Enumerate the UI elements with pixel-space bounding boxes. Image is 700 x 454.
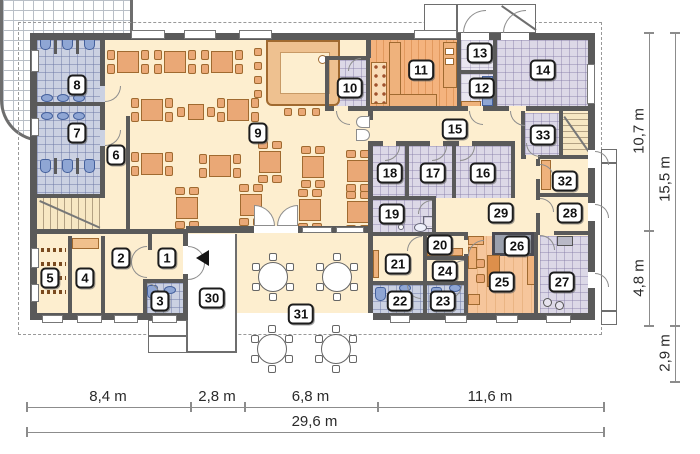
terrace-door-gap — [254, 226, 298, 233]
chair — [201, 64, 209, 74]
room-label-7: 7 — [67, 123, 86, 144]
table-top — [141, 153, 163, 175]
dimension-label: 2,9 m — [657, 334, 674, 372]
wall — [101, 236, 105, 313]
chair — [301, 146, 311, 154]
room-label-29: 29 — [488, 203, 514, 224]
window — [445, 315, 467, 323]
chair — [312, 189, 322, 197]
wall — [511, 146, 515, 198]
chair — [177, 107, 185, 117]
chair — [217, 112, 225, 122]
terrace-chair — [251, 355, 259, 363]
office-cabinet — [468, 294, 480, 305]
room-label-28: 28 — [557, 203, 583, 224]
chair — [251, 112, 259, 122]
chair — [272, 175, 282, 183]
room-label-4: 4 — [75, 268, 94, 289]
wall — [100, 40, 105, 198]
wall — [423, 281, 427, 313]
window — [184, 30, 216, 39]
room-label-2: 2 — [111, 248, 130, 269]
toilet-icon — [375, 287, 386, 301]
chair — [217, 98, 225, 108]
door-gap — [588, 203, 595, 221]
dimension-tick — [603, 427, 605, 437]
bar-stool — [312, 108, 320, 116]
room-label-21: 21 — [385, 254, 411, 275]
dimension-line — [26, 407, 603, 408]
wall — [452, 146, 456, 198]
kitchen-shelf — [371, 62, 387, 104]
table-top — [347, 201, 369, 223]
toilet-icon — [62, 159, 73, 173]
chair — [239, 218, 249, 226]
floor-plan-canvas: 1234567891011121314151617181920212223242… — [0, 0, 700, 454]
boiler-tank — [543, 298, 552, 307]
chair — [154, 64, 162, 74]
chair — [154, 50, 162, 60]
toilet-icon — [84, 159, 95, 173]
terrace-window — [302, 227, 332, 233]
boiler-tank — [555, 301, 564, 310]
table-top — [347, 160, 369, 182]
window — [152, 315, 177, 323]
terrace-chair — [285, 335, 293, 343]
room-label-18: 18 — [377, 163, 403, 184]
terrace-chair — [269, 253, 277, 261]
terrace-table-top — [322, 262, 352, 292]
terrace-chair — [252, 283, 260, 291]
dimension-tick — [26, 402, 28, 412]
dimension-tick — [244, 402, 246, 412]
terrace-chair — [350, 283, 358, 291]
office-chair — [476, 259, 485, 268]
terrace-chair — [286, 263, 294, 271]
chair — [199, 168, 207, 178]
window — [131, 30, 165, 39]
coat-rail — [41, 262, 66, 266]
ramp-divider — [456, 4, 458, 33]
table-top — [211, 51, 233, 73]
room-label-16: 16 — [470, 163, 496, 184]
room-label-33: 33 — [530, 125, 556, 146]
window — [114, 315, 138, 323]
wall — [493, 40, 497, 110]
table-top — [299, 199, 321, 221]
washbasin-room19 — [414, 223, 427, 232]
dimension-label: 8,4 m — [89, 388, 127, 405]
room-label-31: 31 — [288, 304, 314, 325]
dimension-tick — [670, 32, 680, 34]
dimension-label: 29,6 m — [292, 413, 338, 430]
room-label-3: 3 — [150, 291, 169, 312]
table-top — [141, 99, 163, 121]
dimension-label: 2,8 m — [198, 388, 236, 405]
chair — [189, 187, 199, 195]
chair — [239, 184, 249, 192]
room-label-11: 11 — [408, 60, 434, 81]
chair — [315, 180, 325, 188]
sink-icon — [41, 94, 53, 102]
dimension-line — [649, 32, 650, 325]
chair — [131, 112, 139, 122]
chair — [235, 50, 243, 60]
window — [31, 50, 39, 72]
chair — [199, 154, 207, 164]
wall — [148, 234, 152, 250]
wall — [534, 232, 538, 313]
terrace-chair — [349, 335, 357, 343]
bar-stool — [254, 76, 262, 84]
chair — [165, 98, 173, 108]
wall — [325, 56, 329, 110]
door-gap — [461, 33, 489, 40]
room-label-8: 8 — [67, 75, 86, 96]
wall — [457, 40, 461, 110]
window — [31, 284, 39, 302]
table-top — [302, 156, 324, 178]
room-label-25: 25 — [489, 272, 515, 293]
chair — [131, 152, 139, 162]
room-label-12: 12 — [469, 78, 495, 99]
dimension-tick — [603, 402, 605, 412]
room-label-32: 32 — [552, 171, 578, 192]
chair — [188, 50, 196, 60]
dimension-tick — [644, 32, 654, 34]
coat-rail — [41, 248, 66, 252]
terrace-table-top — [258, 262, 288, 292]
chair — [251, 98, 259, 108]
window — [42, 315, 63, 323]
wall — [325, 56, 369, 60]
entrance-arrow-icon — [196, 250, 209, 266]
room-label-20: 20 — [427, 235, 453, 256]
chair — [165, 112, 173, 122]
wall — [68, 236, 72, 313]
chair — [346, 150, 356, 158]
dimension-line — [26, 432, 603, 433]
dimension-tick — [670, 325, 680, 327]
table-top — [209, 155, 231, 177]
terrace-window — [336, 227, 364, 233]
room-label-24: 24 — [432, 261, 458, 282]
door-gap — [588, 150, 595, 168]
table-top — [259, 151, 281, 173]
chair — [272, 141, 282, 149]
terrace-chair — [315, 335, 323, 343]
office-chair — [476, 274, 485, 283]
toilet-icon — [40, 159, 51, 173]
chair — [233, 168, 241, 178]
wall — [536, 193, 588, 197]
dimension-label: 15,5 m — [657, 156, 674, 202]
utility-box — [557, 236, 573, 246]
chair — [165, 166, 173, 176]
bar-stool — [298, 108, 306, 116]
stall-divider — [54, 158, 57, 174]
dimension-tick — [190, 402, 192, 412]
table-top — [188, 104, 204, 120]
dimension-tick — [644, 230, 654, 232]
terrace-chair — [332, 325, 340, 333]
bar-stool — [254, 62, 262, 70]
entry-steps-lower — [148, 336, 188, 353]
wall — [368, 141, 373, 313]
chair — [258, 175, 268, 183]
chair — [346, 191, 356, 199]
wall — [559, 111, 563, 159]
floor-drain-room19 — [398, 224, 404, 230]
room-label-15: 15 — [442, 119, 468, 140]
chair — [131, 98, 139, 108]
chair — [131, 166, 139, 176]
chair — [141, 50, 149, 60]
table-top — [164, 51, 186, 73]
room-label-13: 13 — [467, 43, 493, 64]
chair — [233, 154, 241, 164]
chair — [235, 64, 243, 74]
room-label-27: 27 — [549, 272, 575, 293]
room-label-17: 17 — [420, 163, 446, 184]
terrace-chair — [350, 263, 358, 271]
stall-divider — [54, 40, 57, 54]
window — [239, 30, 272, 39]
wall — [432, 196, 436, 236]
chair — [141, 64, 149, 74]
table-top — [117, 51, 139, 73]
table-top — [227, 99, 249, 121]
dimension-tick — [377, 402, 379, 412]
chair — [175, 221, 185, 229]
chair — [315, 146, 325, 154]
stall-divider — [76, 158, 79, 174]
dimension-tick — [26, 427, 28, 437]
room-label-1: 1 — [157, 248, 176, 269]
sink-icon — [57, 112, 69, 120]
wall — [37, 194, 103, 198]
sink-icon — [57, 94, 69, 102]
chair — [301, 180, 311, 188]
room-label-22: 22 — [387, 291, 413, 312]
wall — [405, 146, 409, 198]
window — [587, 64, 595, 104]
terrace-chair — [285, 355, 293, 363]
sink-icon — [41, 112, 53, 120]
room-label-19: 19 — [379, 204, 405, 225]
swing-door-leaf — [356, 116, 370, 128]
wall — [366, 56, 370, 110]
room-label-30: 30 — [199, 288, 225, 309]
chair — [107, 64, 115, 74]
room-label-23: 23 — [430, 291, 456, 312]
bar-stool — [254, 48, 262, 56]
chair — [175, 187, 185, 195]
bar-stool — [254, 90, 262, 98]
dimension-label: 11,6 m — [468, 388, 513, 405]
window — [31, 118, 39, 136]
wall — [37, 229, 187, 234]
room-label-10: 10 — [337, 78, 363, 99]
wall — [457, 70, 495, 74]
cabinet-room21 — [373, 250, 379, 278]
terrace-chair — [332, 365, 340, 373]
terrace-table-top — [321, 334, 351, 364]
terrace-chair — [252, 263, 260, 271]
terrace-chair — [316, 283, 324, 291]
window — [496, 315, 518, 323]
room-label-14: 14 — [530, 60, 556, 81]
dimension-line — [675, 32, 676, 381]
chair — [165, 152, 173, 162]
wall — [37, 102, 103, 106]
chair — [107, 50, 115, 60]
terrace-chair — [268, 325, 276, 333]
window — [414, 30, 457, 39]
dimension-tick — [670, 381, 680, 383]
dimension-label: 10,7 m — [631, 108, 648, 154]
wall — [30, 33, 37, 320]
table-top — [176, 197, 198, 219]
terrace-chair — [349, 355, 357, 363]
window — [546, 315, 571, 323]
door-gap — [588, 272, 595, 288]
terrace-chair — [316, 263, 324, 271]
window — [77, 315, 102, 323]
storage-shelf — [72, 238, 99, 249]
kitchen-sink — [445, 48, 454, 55]
dimension-label: 6,8 m — [292, 388, 330, 405]
stall-divider — [76, 40, 79, 54]
terrace-chair — [315, 355, 323, 363]
terrace-chair — [286, 283, 294, 291]
terrace-chair — [269, 293, 277, 301]
room-label-6: 6 — [106, 145, 125, 166]
terrace-chair — [333, 293, 341, 301]
room-label-26: 26 — [504, 236, 530, 257]
sink-icon — [73, 112, 85, 120]
chair — [253, 184, 263, 192]
dimension-tick — [644, 325, 654, 327]
chair — [201, 50, 209, 60]
ramp-right — [601, 149, 617, 325]
coat-rail — [41, 290, 66, 294]
terrace-chair — [251, 335, 259, 343]
wall — [366, 33, 371, 58]
room-label-9: 9 — [248, 123, 267, 144]
window — [390, 315, 410, 323]
bar-stool — [284, 108, 292, 116]
chair — [298, 189, 308, 197]
chair — [207, 107, 215, 117]
terrace-chair — [333, 253, 341, 261]
terrace-chair — [268, 365, 276, 373]
terrace-table-top — [257, 334, 287, 364]
window — [31, 248, 39, 268]
ramp-right-mark-bottom — [601, 310, 617, 312]
swing-door-leaf — [356, 129, 370, 141]
door-gap — [501, 33, 529, 40]
kitchen-counter — [389, 42, 401, 100]
wall — [368, 196, 436, 200]
dimension-label: 4,8 m — [631, 259, 648, 297]
wall — [126, 116, 130, 229]
chair — [188, 64, 196, 74]
kitchen-sink — [445, 58, 454, 65]
room-label-5: 5 — [40, 268, 59, 289]
